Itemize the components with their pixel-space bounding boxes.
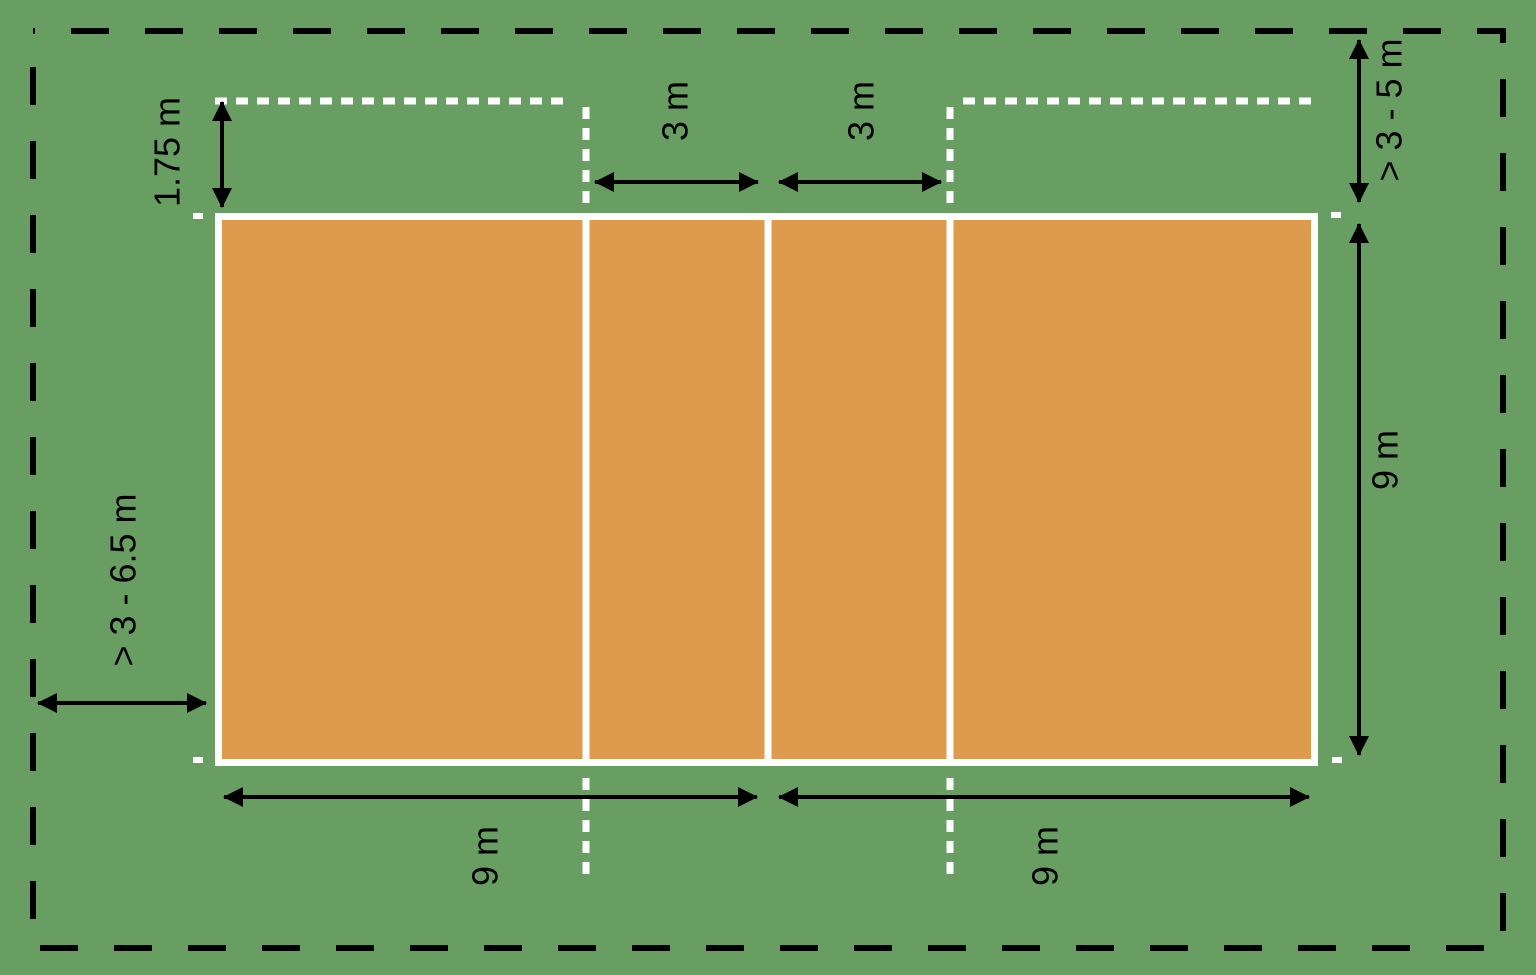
dimension-label-half-court-right: 9 m bbox=[1025, 826, 1066, 886]
dimension-label-half-court-left: 9 m bbox=[465, 826, 506, 886]
dimension-label-free-zone-side: > 3 - 6.5 m bbox=[103, 493, 144, 666]
dimension-label-front-zone-right: 3 m bbox=[841, 81, 882, 141]
end-line-extension-dash-top-left bbox=[193, 213, 203, 219]
dimension-label-attack-line-extension: 1.75 m bbox=[147, 97, 188, 207]
dimension-label-court-width: 9 m bbox=[1365, 430, 1406, 490]
end-line-extension-dash-bottom-right bbox=[1332, 757, 1342, 763]
dimension-label-free-zone-end: > 3 - 5 m bbox=[1369, 38, 1410, 181]
dimension-label-front-zone-left: 3 m bbox=[655, 81, 696, 141]
end-line-extension-dash-top-right bbox=[1331, 212, 1341, 218]
end-line-extension-dash-bottom-left bbox=[193, 757, 203, 763]
volleyball-court-diagram: 1.75 m 3 m 3 m > 3 - 5 m 9 m > 3 - 6.5 m… bbox=[0, 0, 1536, 975]
